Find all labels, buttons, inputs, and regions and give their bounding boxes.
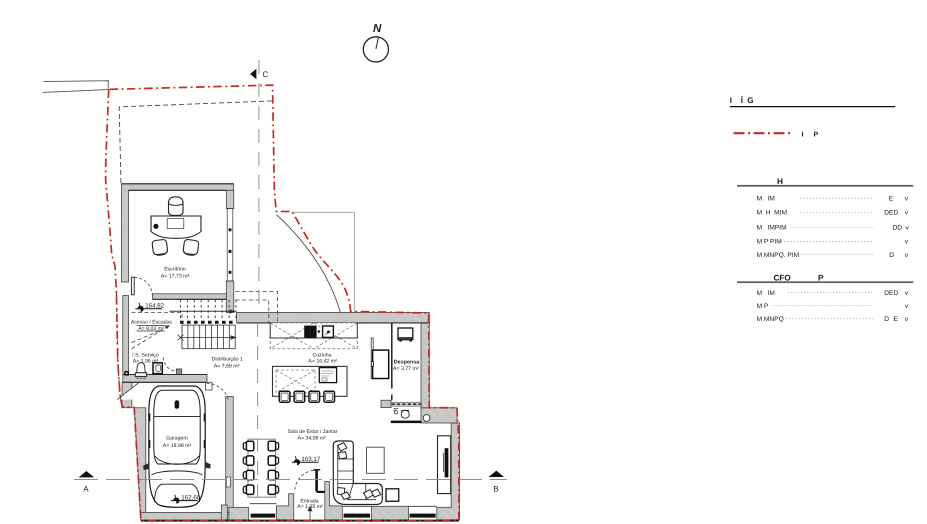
svg-text:M IM: M IM <box>757 195 775 202</box>
svg-text:DD: DD <box>893 225 903 232</box>
svg-text:C: C <box>263 70 269 79</box>
svg-text:I.S. Serviço: I.S. Serviço <box>132 352 159 358</box>
svg-text:M IM: M IM <box>757 290 775 297</box>
svg-text:I: I <box>730 96 732 105</box>
svg-text:M H MIM: M H MIM <box>757 210 787 217</box>
svg-text:A: A <box>83 485 89 494</box>
svg-text:M MNPQ. PIM: M MNPQ. PIM <box>757 252 800 259</box>
svg-text:DED: DED <box>884 290 898 297</box>
svg-text:163,17: 163,17 <box>301 456 320 463</box>
svg-text:164,82: 164,82 <box>145 303 164 310</box>
svg-text:M P: M P <box>757 303 769 310</box>
svg-text:A= 1,35 m²: A= 1,35 m² <box>297 504 323 510</box>
svg-text:A= 18,98 m²: A= 18,98 m² <box>163 443 192 449</box>
svg-text:M IMPIM: M IMPIM <box>757 225 787 232</box>
svg-text:E: E <box>894 316 899 323</box>
svg-text:Despensa: Despensa <box>394 359 420 365</box>
svg-text:DED: DED <box>884 210 898 217</box>
svg-text:A= 1,96 m²: A= 1,96 m² <box>133 358 159 364</box>
svg-text:A= 3,77 m²: A= 3,77 m² <box>393 366 419 372</box>
svg-text:Acesso / Escadas: Acesso / Escadas <box>131 319 173 325</box>
svg-text:B: B <box>493 485 498 494</box>
svg-text:A= 7,69 m²: A= 7,69 m² <box>214 363 240 369</box>
svg-text:E: E <box>889 195 894 202</box>
svg-text:A= 34,08 m²: A= 34,08 m² <box>297 436 326 442</box>
svg-text:A= 17,73 m²: A= 17,73 m² <box>161 273 190 279</box>
svg-text:D: D <box>889 252 894 259</box>
svg-text:I: I <box>802 132 804 139</box>
svg-text:Escritório: Escritório <box>164 266 186 272</box>
svg-text:162,60: 162,60 <box>181 494 200 501</box>
svg-text:H: H <box>777 177 783 186</box>
svg-text:P: P <box>814 132 819 139</box>
svg-text:D: D <box>884 316 889 323</box>
svg-text:M P PIM: M P PIM <box>757 239 782 246</box>
svg-text:G: G <box>747 96 753 105</box>
svg-text:M MNPQ: M MNPQ <box>757 316 784 323</box>
svg-text:Garagem: Garagem <box>166 435 188 441</box>
svg-text:Distribuição 1: Distribuição 1 <box>212 356 244 362</box>
svg-text:Sala de Estar / Jantar: Sala de Estar / Jantar <box>287 429 337 435</box>
svg-text:A= 16,42 m²: A= 16,42 m² <box>308 359 337 365</box>
svg-text:Cozinha: Cozinha <box>312 352 331 358</box>
svg-text:N: N <box>373 23 382 35</box>
